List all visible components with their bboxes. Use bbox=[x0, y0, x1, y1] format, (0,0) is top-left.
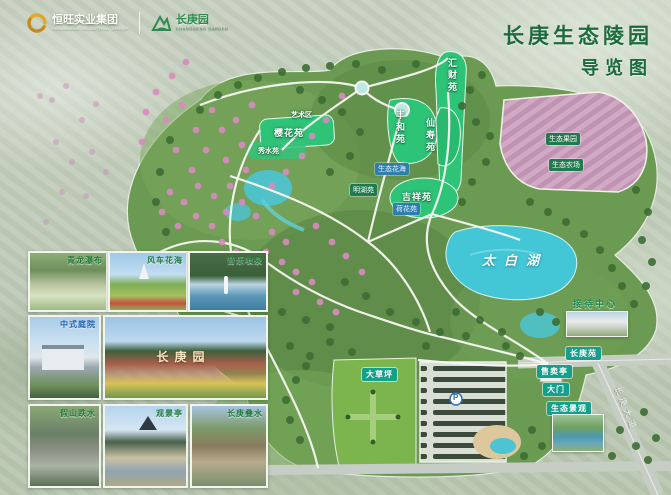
photo-reception-center bbox=[566, 311, 628, 337]
area-label-hehua: 荷花苑 bbox=[393, 203, 420, 215]
area-label-xianshou: 仙寿苑 bbox=[424, 118, 437, 154]
photo-rockery-waterfall: 假山跌水 bbox=[28, 404, 101, 488]
park-logo: 长庚园 CHANGGENG GARDEN bbox=[150, 12, 228, 34]
area-label-fenghe: 丰和苑 bbox=[394, 110, 407, 146]
park-logo-mountain-icon bbox=[150, 12, 172, 34]
company-logo-icon bbox=[26, 12, 48, 34]
facility-label-kiosk: 售卖亭 bbox=[537, 365, 572, 378]
page-title: 长庚生态陵园 导览图 bbox=[503, 20, 653, 80]
photo-eco-landscape bbox=[552, 414, 604, 452]
park-tagline: CHANGGENG GARDEN bbox=[176, 27, 228, 31]
photo-chinese-courtyard: 中式庭院 bbox=[28, 315, 101, 400]
logo-divider bbox=[139, 12, 140, 34]
photo-caption-cascade: 长庚叠水 bbox=[227, 408, 263, 419]
area-label-minghu: 明湖苑 bbox=[350, 184, 377, 196]
facility-label-lawn: 大草坪 bbox=[362, 368, 397, 381]
facility-label-reception: 接待中心 bbox=[573, 297, 617, 310]
guide-map-canvas: 恒旺实业集团 HENGWANG INDUSTRIAL GROUP 长庚园 CHA… bbox=[0, 0, 671, 495]
facility-label-main-gate: 大门 bbox=[543, 383, 569, 396]
area-label-huicai: 汇财苑 bbox=[446, 58, 459, 94]
photo-caption-dragon-falls: 青龙瀑布 bbox=[67, 255, 103, 266]
area-label-yishuqu: 艺术区 bbox=[291, 110, 312, 120]
area-label-nongchang: 生态农场 bbox=[549, 159, 583, 171]
facility-label-changgengyuan: 长庚苑 bbox=[566, 347, 601, 360]
area-label-guoyuan: 生态果园 bbox=[546, 133, 580, 145]
title-line-1: 长庚生态陵园 bbox=[503, 20, 653, 50]
parking-icon: P bbox=[453, 393, 458, 402]
company-logo: 恒旺实业集团 HENGWANG INDUSTRIAL GROUP bbox=[26, 12, 129, 34]
photo-caption-rockery: 假山跌水 bbox=[60, 408, 96, 419]
title-line-2: 导览图 bbox=[503, 54, 653, 80]
photo-caption-pavilion: 观景亭 bbox=[156, 408, 183, 419]
photo-cascade-stream: 长庚叠水 bbox=[190, 404, 268, 488]
photo-caption-courtyard: 中式庭院 bbox=[60, 319, 96, 330]
photo-dragon-falls: 青龙瀑布 bbox=[28, 251, 108, 312]
company-tagline: HENGWANG INDUSTRIAL GROUP bbox=[52, 27, 129, 31]
gate-sign-text: 长庚园 bbox=[157, 348, 211, 365]
area-label-huahai: 生态花海 bbox=[375, 163, 409, 175]
pagoda-icon bbox=[139, 416, 157, 430]
photo-viewing-pavilion: 观景亭 bbox=[103, 404, 188, 488]
header-logos: 恒旺实业集团 HENGWANG INDUSTRIAL GROUP 长庚园 CHA… bbox=[26, 12, 228, 34]
area-label-xiushui: 秀水苑 bbox=[258, 146, 279, 156]
area-label-yinghua: 樱花苑 bbox=[274, 126, 304, 139]
area-label-jixiang: 吉祥苑 bbox=[402, 190, 432, 203]
lake-label: 太白湖 bbox=[482, 250, 548, 269]
photo-windmill-flower-sea: 风车花海 bbox=[108, 251, 188, 312]
photo-caption-windmill: 风车花海 bbox=[147, 255, 183, 266]
fountain-icon bbox=[224, 276, 228, 294]
photo-entrance-gate: 长庚园 bbox=[103, 315, 268, 400]
park-name: 长庚园 bbox=[176, 15, 228, 27]
courtyard-building-icon bbox=[42, 345, 83, 370]
photo-caption-fountain: 音乐喷泉 bbox=[227, 255, 263, 266]
photo-music-fountain: 音乐喷泉 bbox=[188, 251, 268, 312]
company-name: 恒旺实业集团 bbox=[52, 15, 129, 27]
